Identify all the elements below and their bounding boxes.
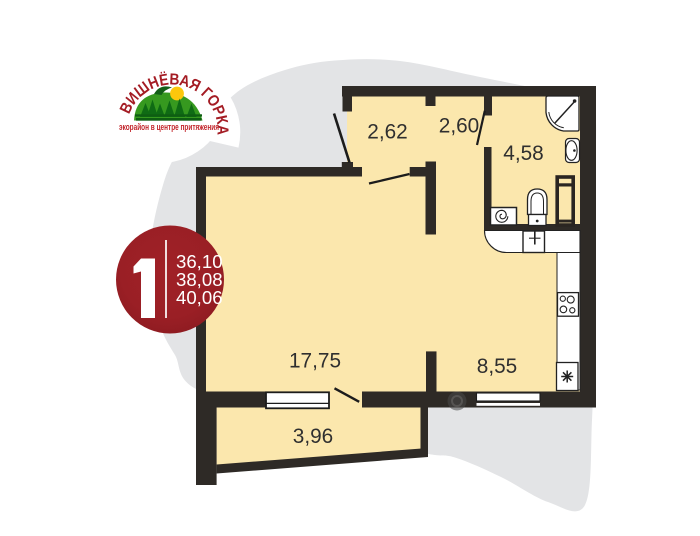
svg-text:4,58: 4,58	[503, 142, 543, 165]
svg-text:8,55: 8,55	[477, 355, 517, 378]
svg-text:2,60: 2,60	[439, 115, 479, 138]
svg-text:3,96: 3,96	[293, 425, 333, 448]
svg-text:40,06: 40,06	[176, 287, 223, 308]
svg-text:2,62: 2,62	[367, 121, 407, 144]
svg-text:экорайон в центре притяжения: экорайон в центре притяжения	[119, 122, 219, 133]
svg-text:17,75: 17,75	[289, 349, 341, 372]
